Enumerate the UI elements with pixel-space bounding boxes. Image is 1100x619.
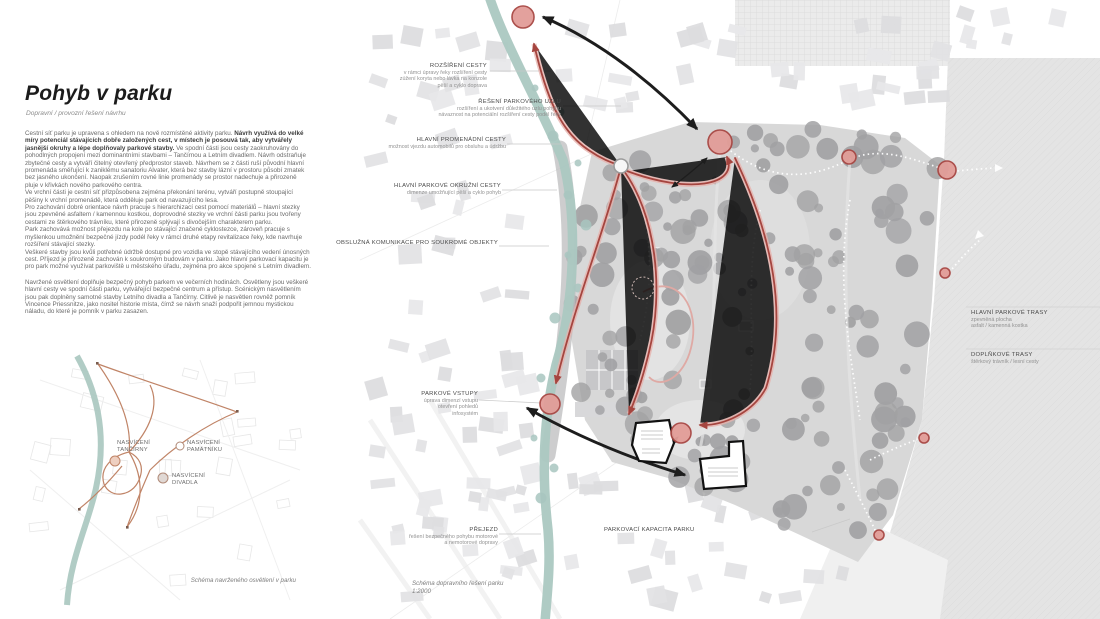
legend-secondary-routes: DOPLŇKOVÉ TRASY štěrkový trávník / lesní… (971, 352, 1039, 365)
label-line: NASVÍCENÍ (172, 473, 205, 480)
label-nasviceni-tancirny: NASVÍCENÍ TANČÍRNY (117, 440, 150, 453)
label-nasviceni-divadla: NASVÍCENÍ DIVADLA (172, 473, 205, 486)
legend-main-routes: HLAVNÍ PARKOVÉ TRASY zpevněná plocha asf… (971, 310, 1048, 330)
lighting-diagram-caption: Schéma navrženého osvětlení v parku (191, 577, 296, 585)
light-spot-pamatnik (176, 442, 184, 450)
paragraph-upper-part: Ve vrchní části je cestní síť přizpůsobe… (25, 189, 311, 204)
page-subtitle: Dopravní / provozní řešení návrhu (26, 110, 126, 117)
paragraph-service: Veškeré stavby jsou kvůli potřebné údržb… (25, 249, 311, 271)
annotation-circular-routes: HLAVNÍ PARKOVÉ OKRUŽNÍ CESTY dimenze umo… (394, 183, 501, 196)
label-line: NASVÍCENÍ (187, 440, 222, 447)
annotation-title: OBSLUŽNÁ KOMUNIKACE PRO SOUKROMÉ OBJEKTY (336, 240, 498, 247)
annotation-promenade-routes: HLAVNÍ PROMENÁDNÍ CESTY možnost vjezdu a… (389, 137, 506, 150)
annotation-title: HLAVNÍ PARKOVÉ OKRUŽNÍ CESTY (394, 183, 501, 190)
annotation-parking-capacity: PARKOVACÍ KAPACITA PARKU (604, 527, 695, 534)
label-line: PAMÁTNÍKU (187, 447, 222, 454)
light-spot-tancirna (110, 456, 120, 466)
map-caption-scale: 1:2000 (412, 588, 504, 596)
lighting-diagram-graphic (29, 356, 301, 605)
annotation-park-node: ŘEŠENÍ PARKOVÉHO UZLU rozšíření a ukotve… (438, 99, 561, 119)
annotation-line: návaznost na potenciální rozšíření cesty… (438, 112, 561, 118)
description-text: Cestní síť parku je upravena s ohledem n… (25, 130, 311, 316)
annotation-line: a nemotorové dopravy (409, 540, 498, 546)
annotation-title: ROZŠÍŘENÍ CESTY (400, 63, 487, 70)
paragraph-network: Cestní síť parku je upravena s ohledem n… (25, 130, 311, 189)
annotation-service-road: OBSLUŽNÁ KOMUNIKACE PRO SOUKROMÉ OBJEKTY (336, 240, 498, 247)
map-caption: Schéma dopravního řešení parku 1:2000 (412, 580, 504, 595)
paragraph-lead: Cestní síť parku je upravena s ohledem n… (25, 130, 234, 137)
annotation-park-entrances: PARKOVÉ VSTUPY úprava dimenzí vstupu ote… (421, 391, 478, 417)
legend-line: asfalt / kamenná kostka (971, 323, 1048, 329)
river-node (614, 159, 628, 173)
paragraph-rest: Ve spodní části jsou cesty zaokruhovány … (25, 145, 306, 189)
annotation-line: možnost vjezdu automobilů pro obsluhu a … (389, 144, 506, 150)
annotation-title: ŘEŠENÍ PARKOVÉHO UZLU (438, 99, 561, 106)
annotation-crossing: PŘEJEZD řešení bezpečného pohybu motorov… (409, 527, 498, 547)
annotation-line: zúžení koryta nebo lávka na konzole (400, 76, 487, 82)
legend-title: HLAVNÍ PARKOVÉ TRASY (971, 310, 1048, 317)
annotation-title: PARKOVACÍ KAPACITA PARKU (604, 527, 695, 534)
lighting-diagram-river (67, 356, 101, 605)
legend-title: DOPLŇKOVÉ TRASY (971, 352, 1039, 359)
annotation-title: PŘEJEZD (409, 527, 498, 534)
map-caption-line: Schéma dopravního řešení parku (412, 580, 504, 588)
annotation-line: pěší a cyklo doprava (400, 83, 487, 89)
label-line: NASVÍCENÍ (117, 440, 150, 447)
annotation-line: infosystém (421, 411, 478, 417)
paragraph-cycling: Park zachovává možnost přejezdu na kole … (25, 226, 311, 248)
page-title: Pohyb v parku (25, 82, 172, 106)
annotation-line: dimenze umožňující pěší a cyklo pohyb (394, 190, 501, 196)
presentation-board: Pohyb v parku Dopravní / provozní řešení… (0, 0, 1100, 619)
annotation-title: PARKOVÉ VSTUPY (421, 391, 478, 398)
annotation-title: HLAVNÍ PROMENÁDNÍ CESTY (389, 137, 506, 144)
label-line: DIVADLA (172, 480, 205, 487)
paragraph-lighting: Navržené osvětlení doplňuje bezpečný poh… (25, 279, 311, 316)
light-spot-divadlo (158, 473, 168, 483)
paragraph-materials: Pro zachování dobré orientace návrh prac… (25, 204, 311, 226)
label-nasviceni-pamatniku: NASVÍCENÍ PAMÁTNÍKU (187, 440, 222, 453)
label-line: TANČÍRNY (117, 447, 150, 454)
annotation-path-widening: ROZŠÍŘENÍ CESTY v rámci úpravy řeky rozš… (400, 63, 487, 89)
legend-line: štěrkový trávník / lesní cesty (971, 359, 1039, 365)
